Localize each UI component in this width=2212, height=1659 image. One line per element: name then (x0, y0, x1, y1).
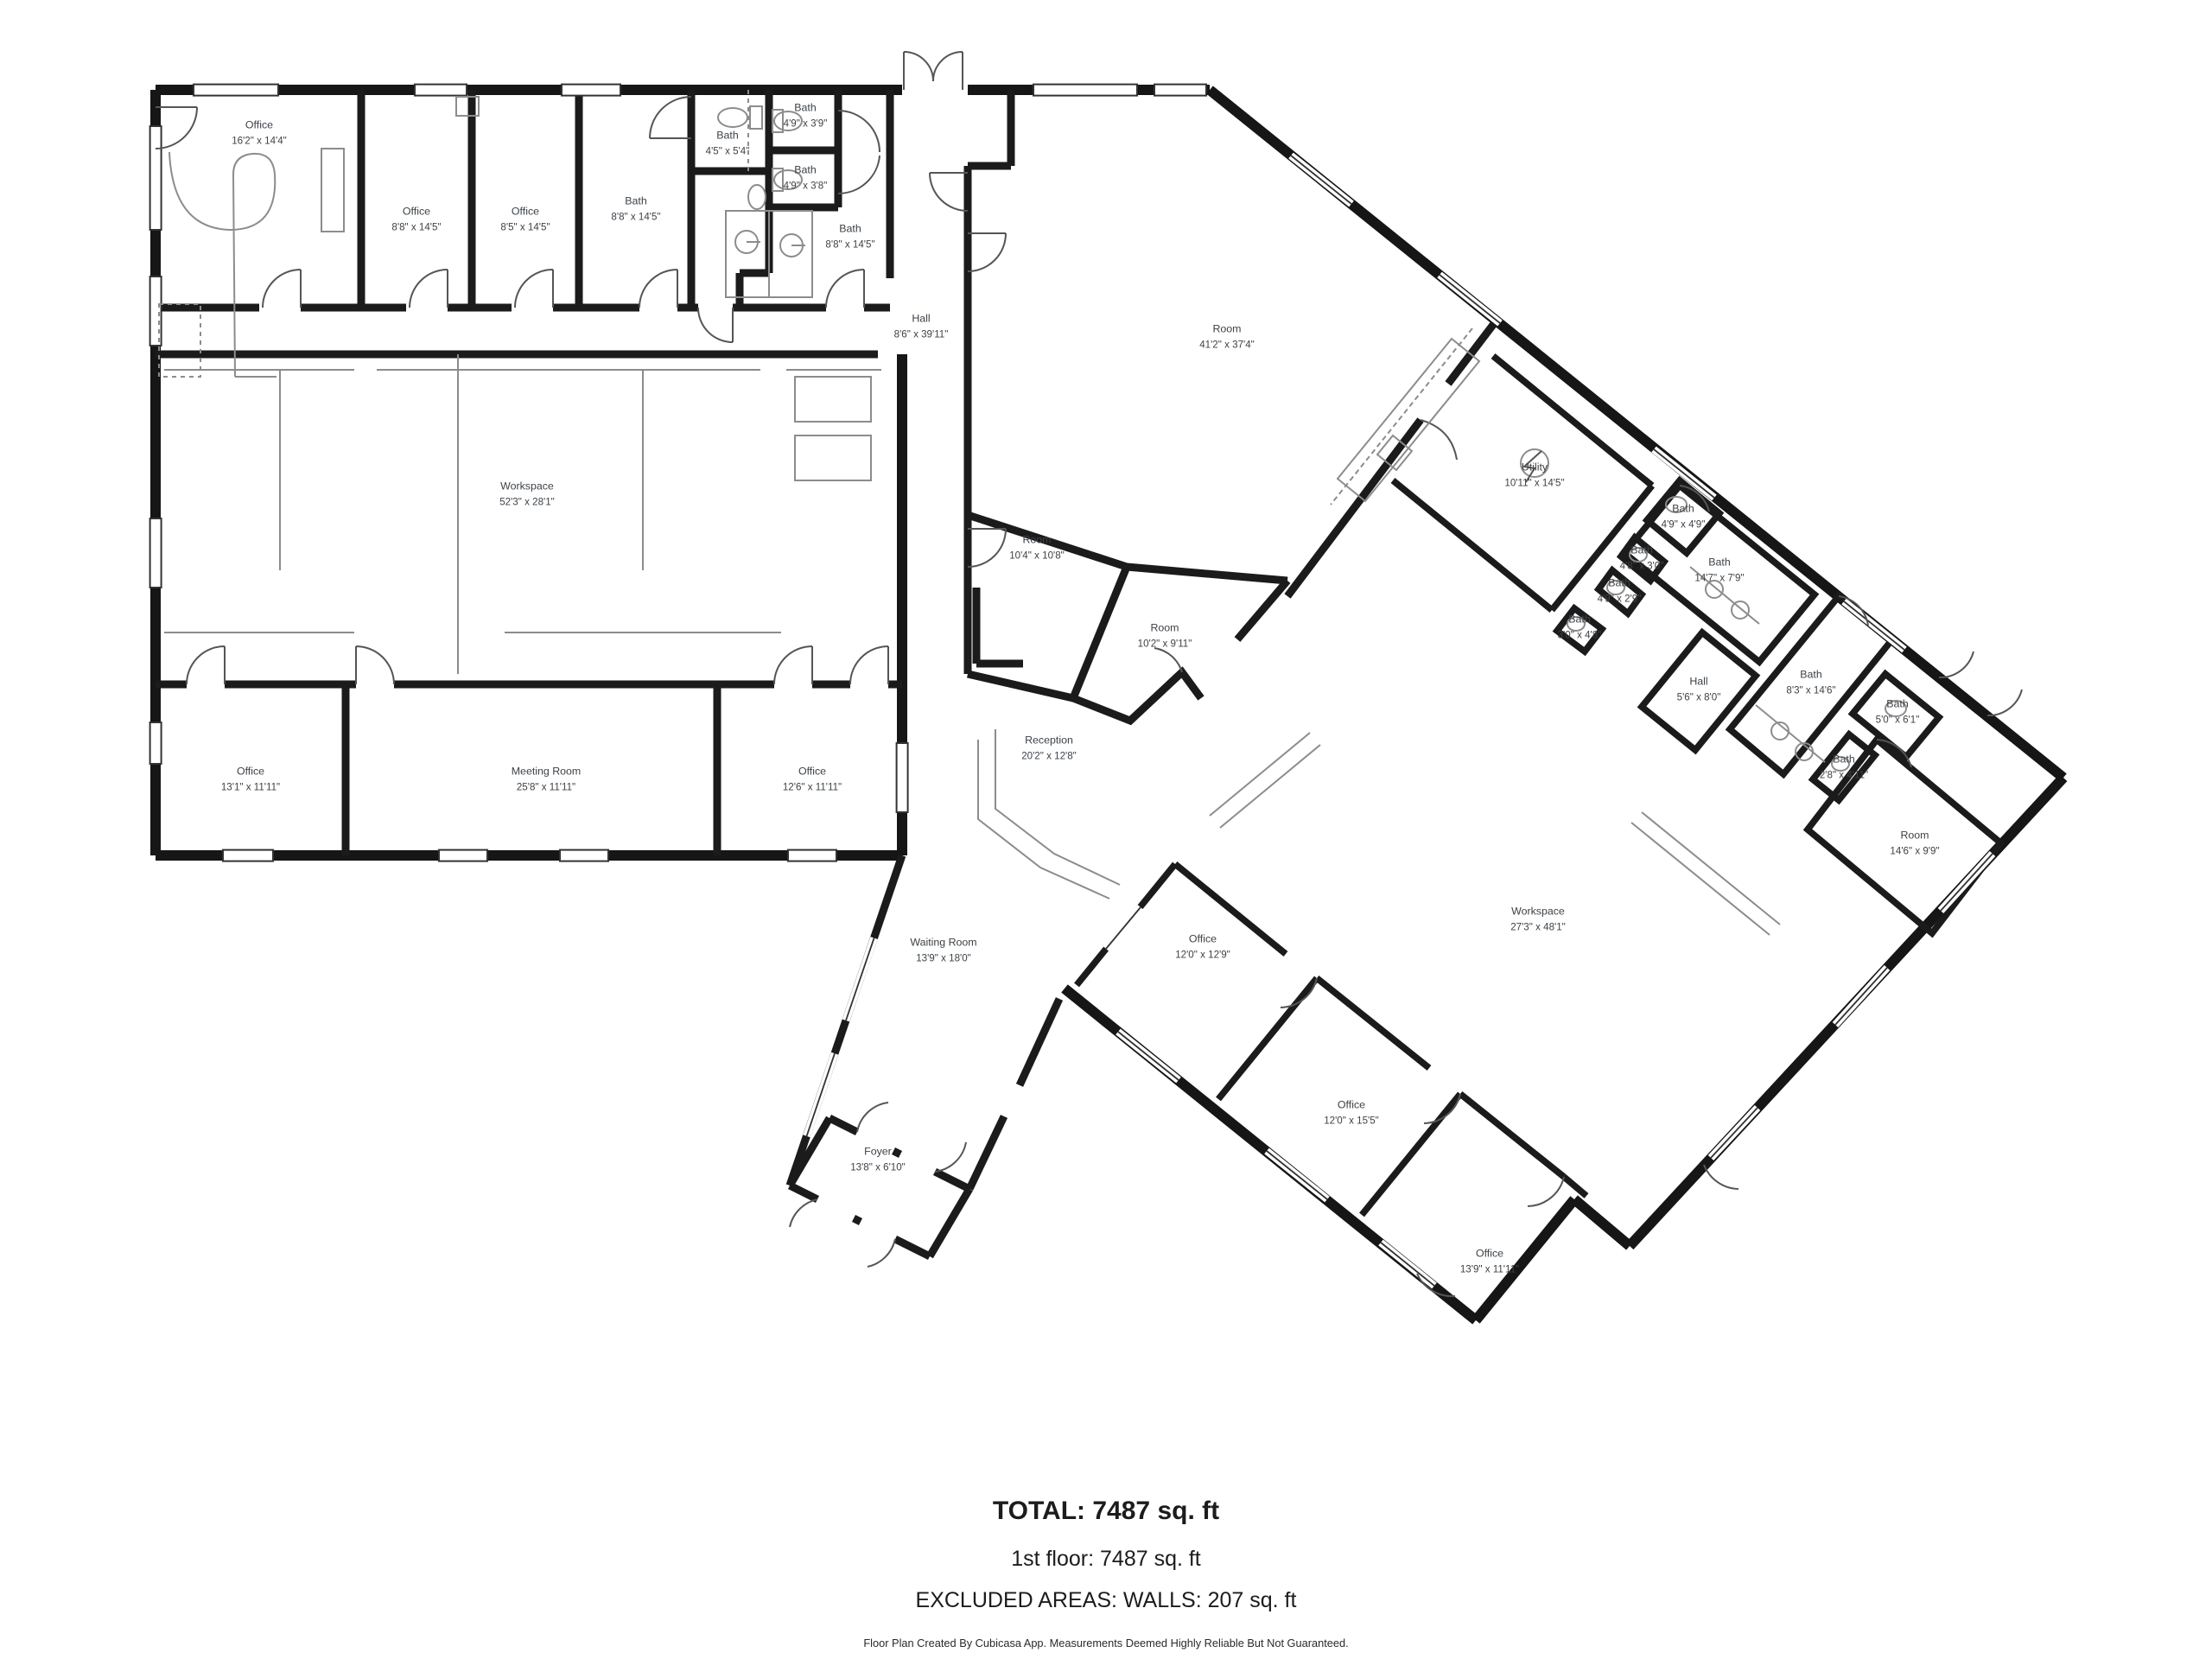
floor-plan-stage: Office16'2" x 14'4" Office8'8" x 14'5" O… (0, 0, 2212, 1659)
room-label-office-5: Office12'6" x 11'11" (783, 766, 842, 797)
room-label-room-2: Room10'4" x 10'8" (1009, 535, 1065, 565)
exterior-walls (156, 90, 2063, 1320)
room-label-office-4: Office13'1" x 11'11" (221, 766, 280, 797)
room-label-bath-10: Bath14'7" x 7'9" (1694, 557, 1744, 588)
room-label-room-4: Room14'6" x 9'9" (1890, 830, 1939, 861)
room-label-bath-3: Bath4'9" x 3'9" (784, 103, 828, 133)
first-floor-area-text: 1st floor: 7487 sq. ft (0, 1547, 2212, 1571)
room-label-bath-7: Bath4'8" x 3'0" (1620, 545, 1664, 575)
room-label-waiting-room: Waiting Room13'9" x 18'0" (910, 938, 976, 968)
room-label-office-1: Office16'2" x 14'4" (232, 120, 287, 150)
floor-plan-drawing (0, 0, 2212, 1659)
room-label-bath-6: Bath4'9" x 4'9" (1662, 504, 1706, 534)
room-label-bath-2: Bath4'5" x 5'4" (706, 130, 750, 161)
room-label-hall-2: Hall5'6" x 8'0" (1677, 677, 1721, 707)
interior-walls-left (156, 90, 1011, 855)
room-label-room-1: Room41'2" x 37'4" (1199, 324, 1255, 354)
floor-plan-page: Office16'2" x 14'4" Office8'8" x 14'5" O… (0, 0, 2212, 1659)
room-label-bath-12: Bath5'0" x 6'1" (1876, 699, 1920, 729)
excluded-areas-text: EXCLUDED AREAS: WALLS: 207 sq. ft (0, 1588, 2212, 1612)
room-label-foyer: Foyer13'8" x 6'10" (850, 1147, 906, 1177)
room-label-office-7: Office12'0" x 15'5" (1324, 1100, 1379, 1130)
room-label-office-3: Office8'5" x 14'5" (500, 207, 550, 237)
door-arcs (156, 52, 2022, 1296)
room-label-bath-11: Bath8'3" x 14'6" (1786, 670, 1835, 700)
room-label-meeting-room: Meeting Room25'8" x 11'11" (512, 766, 582, 797)
windows-rotated (807, 156, 1993, 1286)
room-label-bath-8: Bath4'9" x 2'9" (1598, 578, 1642, 608)
room-label-room-3: Room10'2" x 9'11" (1138, 623, 1192, 653)
room-label-office-6: Office12'0" x 12'9" (1175, 934, 1230, 964)
room-label-utility: Utility10'11" x 14'5" (1504, 462, 1564, 493)
room-label-office-8: Office13'9" x 11'11" (1460, 1249, 1519, 1279)
room-label-workspace-1: Workspace52'3" x 28'1" (499, 481, 555, 512)
room-label-bath-9: Bath3'0" x 4'8" (1558, 614, 1602, 645)
room-label-hall-1: Hall8'6" x 39'11" (894, 314, 949, 344)
room-label-bath-5: Bath8'8" x 14'5" (825, 224, 874, 254)
room-label-bath-13: Bath2'8" x 4'11" (1820, 754, 1868, 785)
room-label-workspace-2: Workspace27'3" x 48'1" (1510, 906, 1566, 937)
total-area-text: TOTAL: 7487 sq. ft (0, 1497, 2212, 1526)
room-label-bath-4: Bath4'9" x 3'8" (784, 165, 828, 195)
room-label-bath-1: Bath8'8" x 14'5" (611, 196, 660, 226)
disclaimer-text: Floor Plan Created By Cubicasa App. Meas… (0, 1638, 2212, 1650)
room-label-reception: Reception20'2" x 12'8" (1021, 735, 1077, 766)
room-label-office-2: Office8'8" x 14'5" (391, 207, 441, 237)
